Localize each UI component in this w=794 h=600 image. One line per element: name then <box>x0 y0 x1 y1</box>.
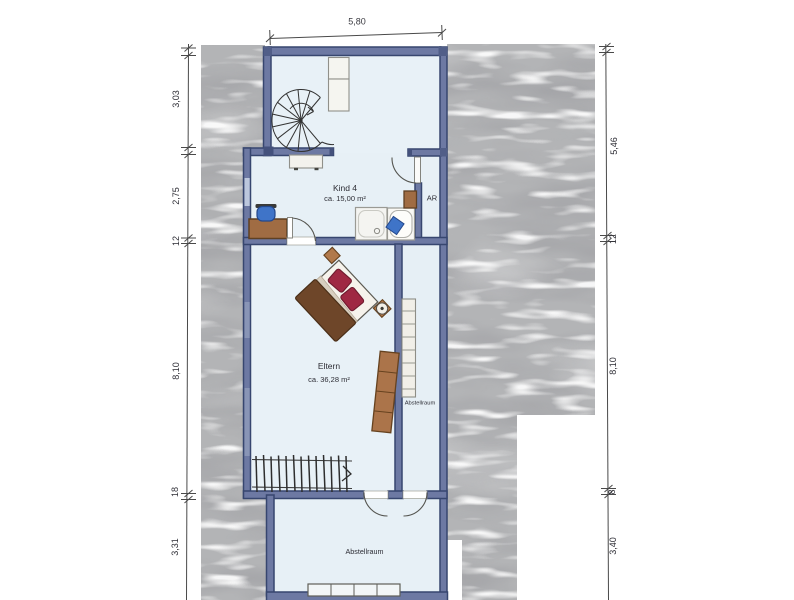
svg-text:12: 12 <box>608 234 618 244</box>
svg-text:5,80: 5,80 <box>348 17 366 27</box>
svg-text:8,10: 8,10 <box>608 357 618 375</box>
svg-text:AR: AR <box>427 194 438 203</box>
svg-text:5,46: 5,46 <box>609 137 619 155</box>
svg-text:2,75: 2,75 <box>171 187 181 205</box>
svg-text:Kind 4: Kind 4 <box>333 183 357 193</box>
svg-text:3,40: 3,40 <box>608 537 618 555</box>
svg-text:ca. 15,00 m²: ca. 15,00 m² <box>324 194 366 203</box>
svg-text:Eltern: Eltern <box>318 361 340 371</box>
svg-text:18: 18 <box>170 487 180 497</box>
svg-text:3,03: 3,03 <box>171 90 181 108</box>
svg-text:8,10: 8,10 <box>171 362 181 380</box>
svg-text:3,31: 3,31 <box>170 538 180 556</box>
svg-text:Abstellraum: Abstellraum <box>405 401 436 407</box>
svg-text:8: 8 <box>607 489 617 494</box>
svg-text:12: 12 <box>171 236 181 246</box>
svg-text:ca. 36,28 m²: ca. 36,28 m² <box>308 375 350 384</box>
svg-text:Abstellraum: Abstellraum <box>346 547 384 556</box>
